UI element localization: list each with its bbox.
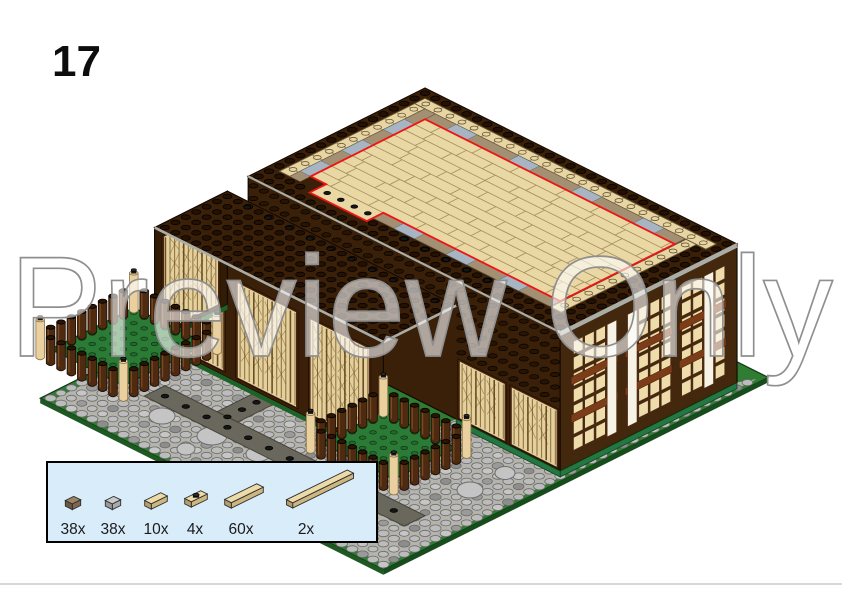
parts-callout-graphics: 38x38x10x4x60x2x: [48, 463, 375, 540]
page-bottom-divider: [0, 583, 842, 585]
part-count-tile-1x1: 38x: [101, 521, 126, 538]
parts-callout: 38x38x10x4x60x2x: [46, 461, 378, 543]
part-count-tile-1x8: 2x: [298, 521, 315, 538]
part-count-tile-1x4: 60x: [229, 521, 254, 538]
step-number: 17: [52, 40, 101, 84]
part-count-tile-1x2: 10x: [144, 521, 169, 538]
instruction-page: { "step": { "number": "17" }, "watermark…: [0, 0, 842, 595]
part-count-jumper-plate-1x2: 4x: [187, 521, 204, 538]
part-count-tile-1x1: 38x: [61, 521, 86, 538]
